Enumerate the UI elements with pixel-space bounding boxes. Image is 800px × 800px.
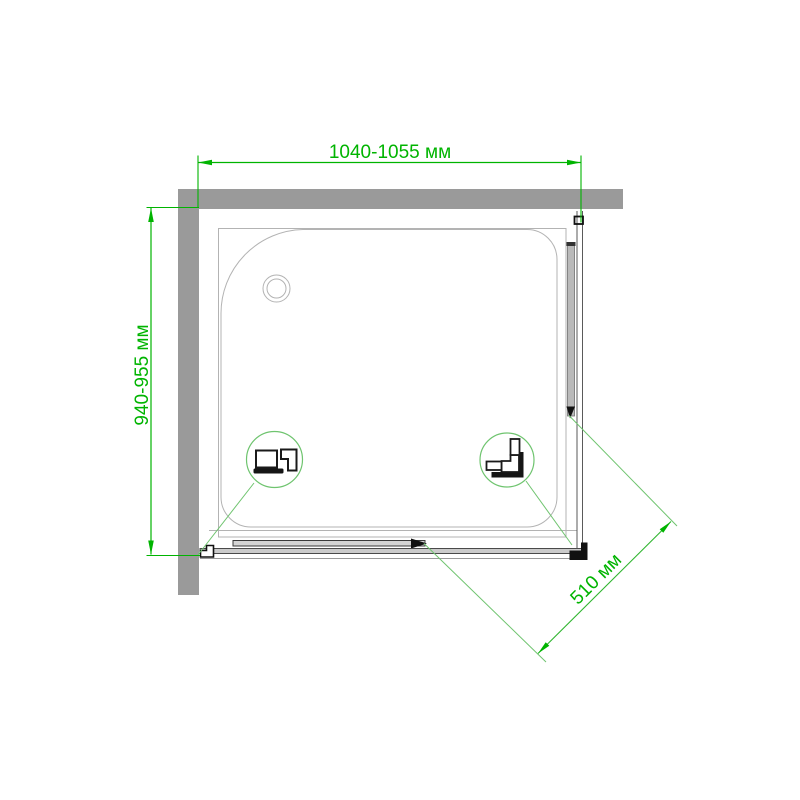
opening-ext-lower: [424, 544, 546, 663]
width-dimension-label: 1040-1055 мм: [329, 142, 451, 163]
shower-enclosure-drawing: 1040-1055 мм 940-955 мм 510 мм: [0, 0, 800, 800]
left-corner-bracket: [201, 546, 214, 558]
side-top-bracket: [575, 217, 584, 225]
width-dimension: 1040-1055 мм: [198, 142, 581, 223]
depth-arrow-bottom: [148, 541, 154, 555]
walls: [178, 189, 623, 595]
right-corner-bracket: [570, 543, 588, 561]
bottom-frame-profile: [200, 549, 586, 554]
detail-circle-right: [480, 433, 534, 487]
shower-tray: [209, 229, 577, 538]
detail-leader-right: [526, 481, 572, 545]
opening-ext-upper: [569, 416, 677, 527]
top-wall: [178, 189, 623, 209]
left-wall: [178, 189, 199, 595]
side-panel-assembly: [567, 211, 584, 552]
width-arrow-right: [567, 160, 581, 166]
front-frame-assembly: [200, 539, 588, 561]
tray-basin: [221, 230, 557, 528]
corner-profile-tab: [487, 462, 502, 471]
corner-profile-body: [502, 455, 520, 472]
tray-rim: [219, 229, 567, 538]
wall-profile-body: [256, 451, 277, 468]
drain-circle-inner: [267, 279, 286, 298]
width-arrow-left: [198, 160, 212, 166]
depth-dimension-label: 940-955 мм: [132, 324, 153, 425]
wall-profile-section-icon: [254, 450, 297, 474]
depth-arrow-top: [148, 208, 154, 222]
corner-profile-section-icon: [487, 439, 524, 478]
side-door-panel: [568, 243, 575, 416]
corner-profile-stick: [511, 439, 520, 455]
wall-profile-base: [254, 469, 284, 474]
front-door-panel: [233, 541, 425, 547]
opening-dimension-line: [538, 522, 671, 654]
opening-dimension: 510 мм: [424, 416, 677, 663]
wall-profile-step: [281, 450, 297, 471]
side-door-cap: [567, 242, 576, 246]
